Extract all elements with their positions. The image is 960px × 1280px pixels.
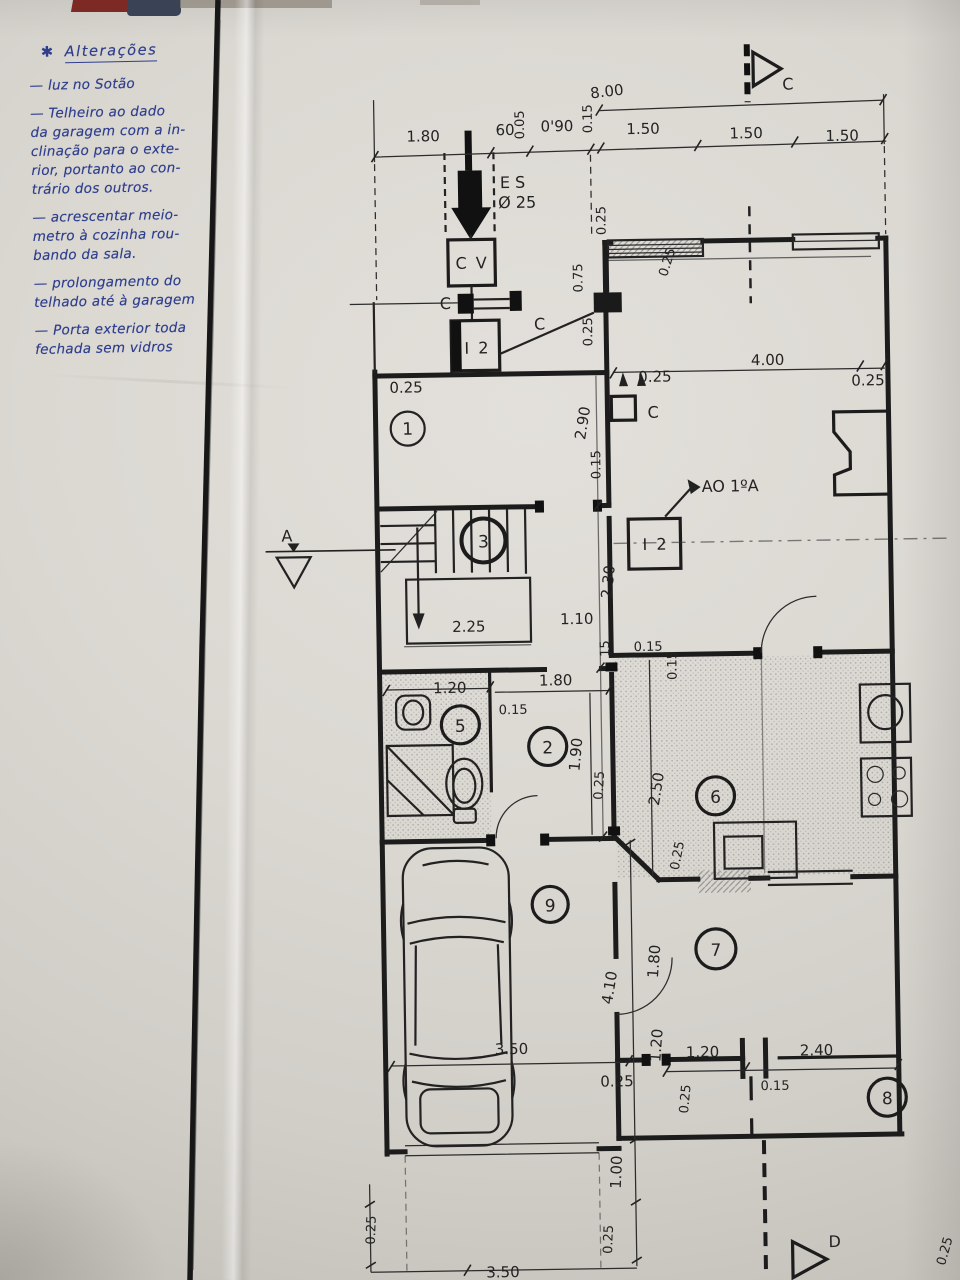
- dim-label: 8.00: [589, 81, 624, 103]
- es-pipe-arrow: [444, 130, 495, 240]
- dim-label: 0.25: [600, 1072, 634, 1091]
- dim-label: 2.30: [597, 564, 618, 599]
- dim-label: 4.00: [751, 351, 785, 370]
- dim-label: 0.15: [665, 651, 680, 680]
- dim-label: 0.25: [638, 367, 672, 386]
- stair-direction-arrow: [413, 613, 425, 629]
- c-connector-label: C: [440, 294, 451, 313]
- svg-text:3: 3: [478, 532, 489, 552]
- dim-label: 60: [495, 121, 514, 139]
- dim-label: 1.80: [539, 671, 573, 690]
- room-number-2: 2: [528, 727, 567, 766]
- room-number-9: 9: [532, 886, 569, 923]
- column-symbol: [611, 396, 635, 420]
- dim-label: 0.15: [499, 703, 528, 718]
- dim-label: 15: [598, 640, 613, 657]
- dim-label: 3.50: [495, 1040, 529, 1059]
- dim-label: 1.50: [626, 120, 660, 139]
- es-size-label: Ø 25: [498, 193, 536, 213]
- ao-arrowhead: [688, 479, 701, 494]
- dim-label: 0.25: [677, 1084, 695, 1114]
- room-number-7: 7: [696, 929, 737, 970]
- svg-text:6: 6: [710, 788, 721, 808]
- dim-label: 3.50: [486, 1263, 520, 1280]
- dim-label: 2.40: [800, 1041, 834, 1060]
- dim-label: 0.25: [594, 206, 609, 235]
- svg-text:9: 9: [545, 896, 556, 916]
- dim-label: 0.05: [513, 110, 528, 139]
- dim-label: 0.15: [581, 104, 596, 133]
- fold-line: [190, 0, 220, 1280]
- ao-first-floor-label: AO 1ºA: [702, 476, 759, 496]
- svg-text:5: 5: [455, 717, 466, 737]
- car-drawing: [400, 847, 516, 1147]
- i2-lower-label: I 2: [642, 535, 668, 554]
- dim-label: 2.90: [571, 405, 594, 441]
- dim-label: 0.25: [581, 317, 596, 346]
- dim-label: 0.25: [934, 1235, 956, 1267]
- room-number-1: 1: [390, 411, 425, 446]
- dim-label: 1.20: [433, 679, 467, 698]
- dim-label: 1.50: [729, 124, 763, 143]
- c-column-label: C: [647, 403, 658, 422]
- svg-text:2: 2: [542, 738, 553, 758]
- dim-label: 1.90: [565, 737, 586, 772]
- dim-label: 0.25: [851, 371, 885, 390]
- section-a-label: A: [281, 526, 292, 545]
- dim-label: 0.15: [589, 450, 604, 479]
- dim-label: 1.50: [825, 126, 859, 145]
- svg-text:1: 1: [402, 420, 413, 440]
- dim-label: 2.25: [452, 617, 486, 636]
- es-label: E S: [500, 173, 526, 192]
- section-c-label: C: [782, 75, 793, 94]
- dim-label: 0.25: [364, 1215, 380, 1244]
- dim-label: 1.20: [686, 1043, 720, 1062]
- dim-label: 0.25: [601, 1225, 617, 1254]
- c-line-label: C: [534, 314, 545, 333]
- dim-label: 0.75: [571, 263, 586, 292]
- section-marker-d: [764, 1139, 827, 1278]
- svg-text:8: 8: [882, 1089, 893, 1109]
- dim-label: 1.20: [646, 1028, 666, 1063]
- dim-label: 1.80: [406, 127, 440, 146]
- section-marker-c: [747, 44, 785, 304]
- dim-label: 1.00: [607, 1155, 626, 1189]
- i2-upper-label: I 2: [464, 338, 490, 357]
- dim-label: 0.15: [634, 640, 663, 655]
- dim-label: 0.15: [760, 1079, 789, 1094]
- section-d-label: D: [828, 1232, 841, 1251]
- dim-label: 4.10: [598, 970, 621, 1006]
- svg-text:7: 7: [710, 941, 721, 961]
- room-number-3: 3: [461, 518, 506, 563]
- dim-label: 0.25: [389, 378, 423, 397]
- dim-label: 1.10: [560, 610, 594, 629]
- floor-plan-drawing: 1 3 5 2 6 9 7 8 E S Ø 25 C V I 2 I 2 C C…: [0, 0, 960, 1280]
- cv-label: C V: [455, 253, 488, 273]
- dim-label: 1.80: [644, 944, 664, 979]
- dim-label: 0.25: [592, 771, 609, 801]
- dim-label: 0'90: [540, 117, 573, 136]
